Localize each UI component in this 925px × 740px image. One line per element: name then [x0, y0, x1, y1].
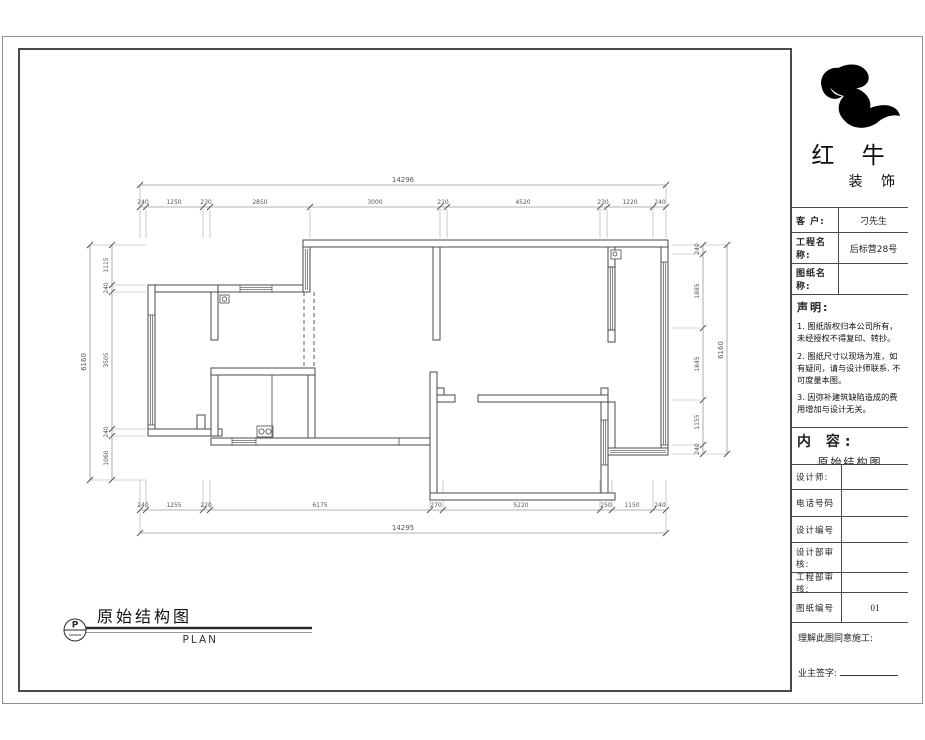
customer-row: 客 户: 刁先生 — [792, 208, 908, 233]
customer-value: 刁先生 — [839, 208, 908, 232]
design-number-label: 设计编号 — [792, 517, 842, 542]
windows — [148, 249, 668, 465]
svg-text:240: 240 — [137, 199, 149, 206]
svg-text:1220: 1220 — [622, 199, 637, 206]
svg-text:230: 230 — [200, 199, 212, 206]
plan-subtitle: PLAN — [183, 634, 218, 646]
logo-cell: 红 牛 装 饰 — [792, 48, 908, 208]
dim-left-total: 6160 — [80, 353, 88, 371]
svg-text:240: 240 — [103, 426, 110, 438]
section-mark-letter: P — [72, 621, 79, 631]
walls — [148, 240, 668, 500]
svg-text:1150: 1150 — [624, 502, 639, 509]
svg-text:220: 220 — [200, 502, 212, 509]
svg-text:250: 250 — [600, 502, 612, 509]
declaration-heading: 声明: — [797, 299, 903, 315]
phone-label: 电话号码 — [792, 490, 842, 516]
phone-row: 电话号码 — [792, 490, 908, 517]
svg-text:240: 240 — [654, 199, 666, 206]
signature-section: 理解此图同意施工: 业主签字: — [792, 623, 908, 692]
svg-text:1060: 1060 — [103, 450, 110, 465]
svg-text:1255: 1255 — [166, 502, 181, 509]
svg-text:1115: 1115 — [103, 257, 110, 272]
design-dept-audit-value — [842, 543, 908, 572]
sheet-number-row: 图纸编号 01 — [792, 593, 908, 623]
project-name-value: 后标营28号 — [839, 233, 908, 263]
phone-value — [842, 490, 908, 516]
svg-text:240: 240 — [694, 443, 701, 455]
dashed-opening — [304, 292, 314, 368]
designer-label: 设计师: — [792, 465, 842, 489]
svg-text:240: 240 — [103, 282, 110, 294]
title-block: 红 牛 装 饰 客 户: 刁先生 工程名称: 后标营28号 图纸名称: 声明: … — [790, 48, 908, 692]
declaration-item: 3. 因弥补建筑缺陷造成的费用增加与设计无关。 — [797, 392, 903, 416]
sheet-name-label: 图纸名称: — [792, 264, 839, 294]
svg-text:1845: 1845 — [694, 356, 701, 371]
svg-text:240: 240 — [694, 243, 701, 255]
project-name-row: 工程名称: 后标营28号 — [792, 233, 908, 264]
svg-text:210: 210 — [437, 199, 449, 206]
design-number-row: 设计编号 — [792, 517, 908, 543]
dim-bottom-total: 14295 — [392, 524, 414, 532]
content-section: 内 容: 原始结构图 — [792, 428, 908, 465]
design-dept-audit-label: 设计部审核: — [792, 543, 842, 572]
dimension-ticks — [87, 182, 730, 536]
sheet-number-value: 01 — [842, 593, 908, 622]
sheet-name-row: 图纸名称: — [792, 264, 908, 295]
dimension-lines — [90, 185, 727, 533]
svg-text:240: 240 — [654, 502, 666, 509]
dimension-extension-lines — [90, 185, 727, 533]
svg-text:230: 230 — [597, 199, 609, 206]
project-name-label: 工程名称: — [792, 233, 839, 263]
svg-text:1885: 1885 — [694, 283, 701, 298]
design-dept-audit-row: 设计部审核: — [792, 543, 908, 573]
customer-label: 客 户: — [792, 208, 839, 232]
engineering-audit-label: 工程部审核: — [792, 573, 842, 592]
dim-right-total: 6160 — [717, 341, 725, 359]
svg-text:4520: 4520 — [515, 199, 530, 206]
svg-text:3505: 3505 — [103, 352, 110, 367]
svg-text:6175: 6175 — [312, 502, 327, 509]
dim-top-total: 14296 — [392, 176, 415, 184]
svg-text:2850: 2850 — [252, 199, 267, 206]
engineering-audit-row: 工程部审核: — [792, 573, 908, 593]
drawing-sheet: 14296 240 1250 230 2850 3000 210 4520 23… — [0, 0, 925, 740]
svg-text:1155: 1155 — [694, 414, 701, 429]
owner-signature: 业主签字: — [798, 666, 902, 679]
svg-text:5220: 5220 — [513, 502, 528, 509]
signature-line — [840, 666, 898, 676]
declaration: 声明: 1. 图纸版权归本公司所有，未经授权不得复印、转抄。 2. 图纸尺寸以现… — [792, 295, 908, 428]
floor-plan: 14296 240 1250 230 2850 3000 210 4520 23… — [0, 0, 925, 740]
brand-logo — [808, 58, 908, 140]
approval-text: 理解此图同意施工: — [798, 631, 902, 644]
svg-text:270: 270 — [430, 502, 442, 509]
designer-value — [842, 465, 908, 489]
plan-title-group: P 原始结构图 PLAN — [64, 607, 312, 646]
design-number-value — [842, 517, 908, 542]
content-heading: 内 容: — [797, 431, 903, 451]
svg-text:3000: 3000 — [367, 199, 382, 206]
declaration-item: 2. 图纸尺寸以现场为准，如有疑问，请与设计师联系. 不可度量本图。 — [797, 351, 903, 387]
fixture-symbols — [220, 250, 621, 445]
sheet-number-label: 图纸编号 — [792, 593, 842, 622]
brand-name: 红 牛 — [792, 136, 908, 170]
plan-title: 原始结构图 — [97, 607, 192, 626]
declaration-item: 1. 图纸版权归本公司所有，未经授权不得复印、转抄。 — [797, 321, 903, 345]
designer-row: 设计师: — [792, 465, 908, 490]
sheet-name-value — [839, 264, 908, 294]
dimension-labels: 14296 240 1250 230 2850 3000 210 4520 23… — [80, 176, 725, 532]
svg-text:1250: 1250 — [166, 199, 181, 206]
engineering-audit-value — [842, 573, 908, 592]
brand-sub: 装 饰 — [792, 171, 908, 191]
svg-text:240: 240 — [137, 502, 149, 509]
